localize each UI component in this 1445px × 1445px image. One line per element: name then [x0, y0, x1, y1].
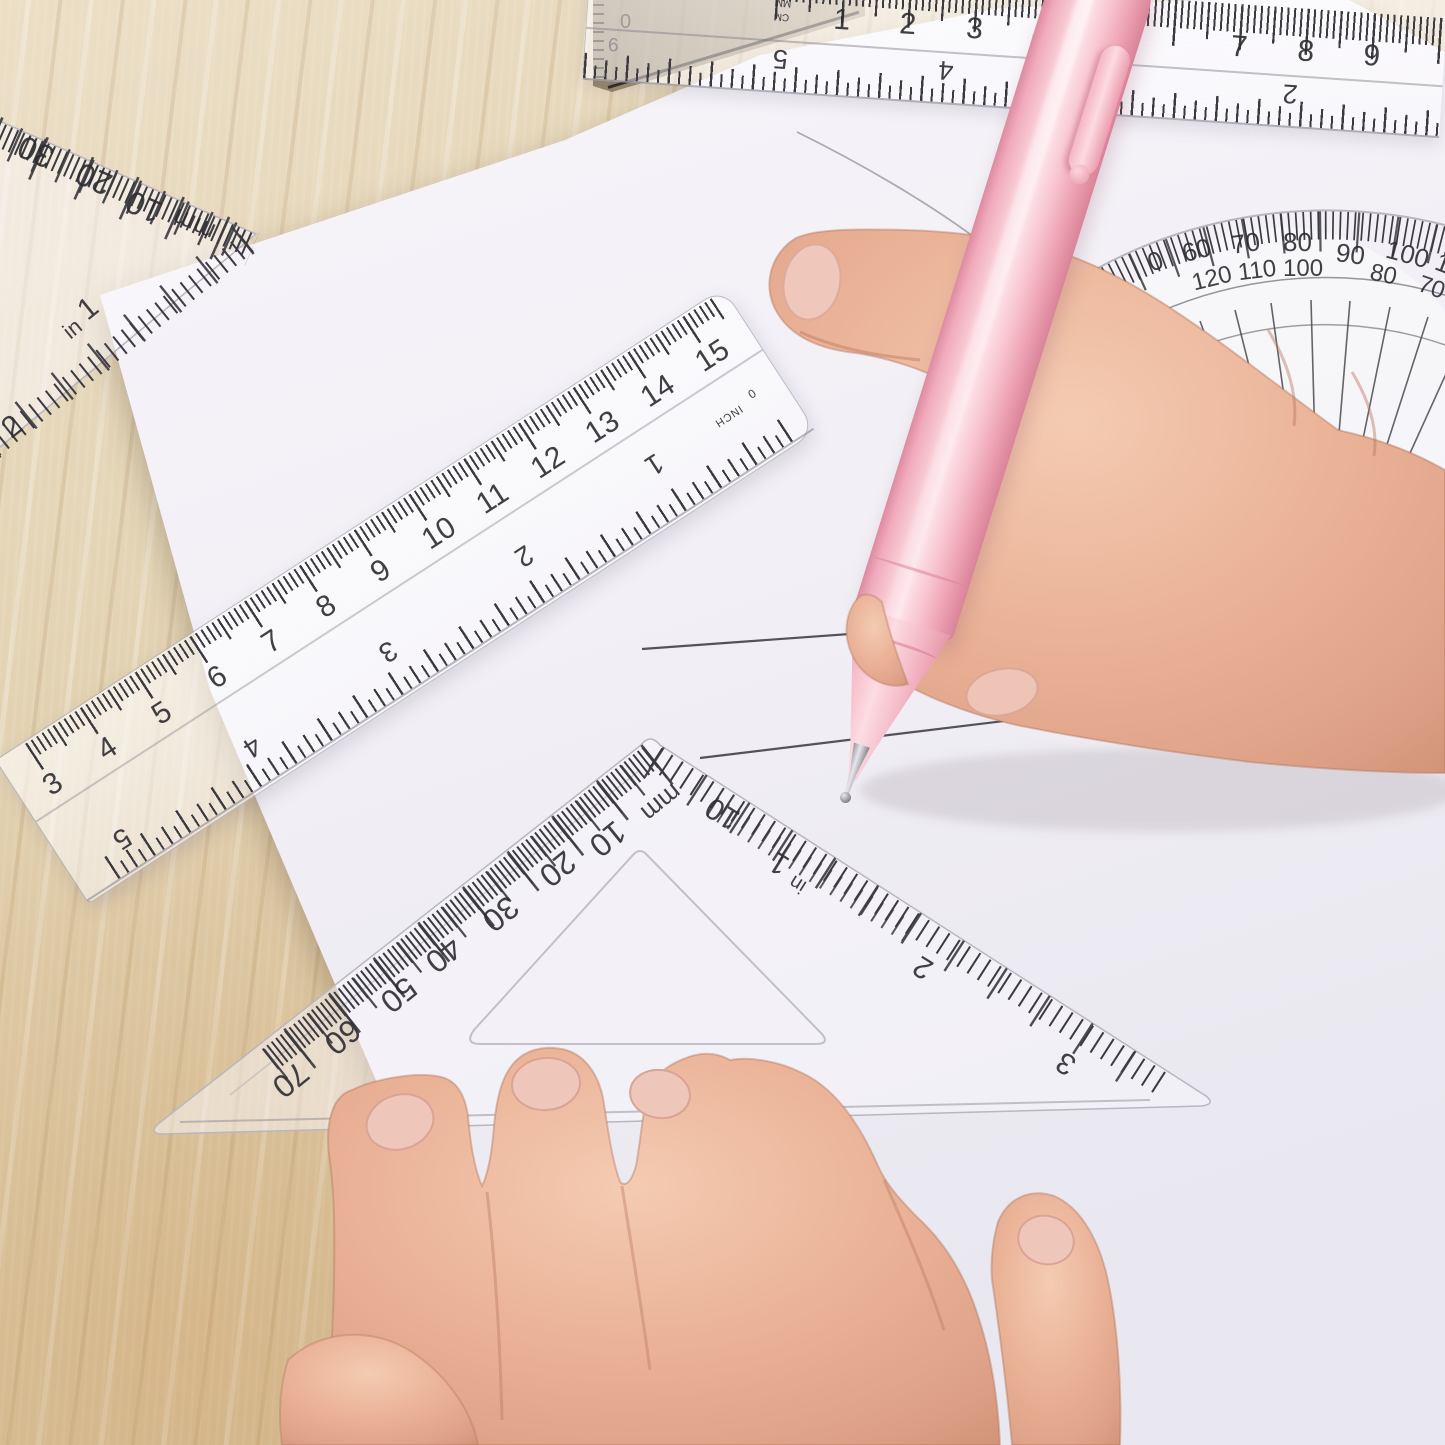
upper-hand — [0, 0, 1445, 1445]
photo-scene: 0 60 70 80 90 100 1 120 110 100 80 70 30… — [0, 0, 1445, 1445]
pen-seam — [873, 555, 966, 587]
pen-ballpoint — [840, 792, 851, 803]
pen-cone-ring — [848, 627, 939, 665]
